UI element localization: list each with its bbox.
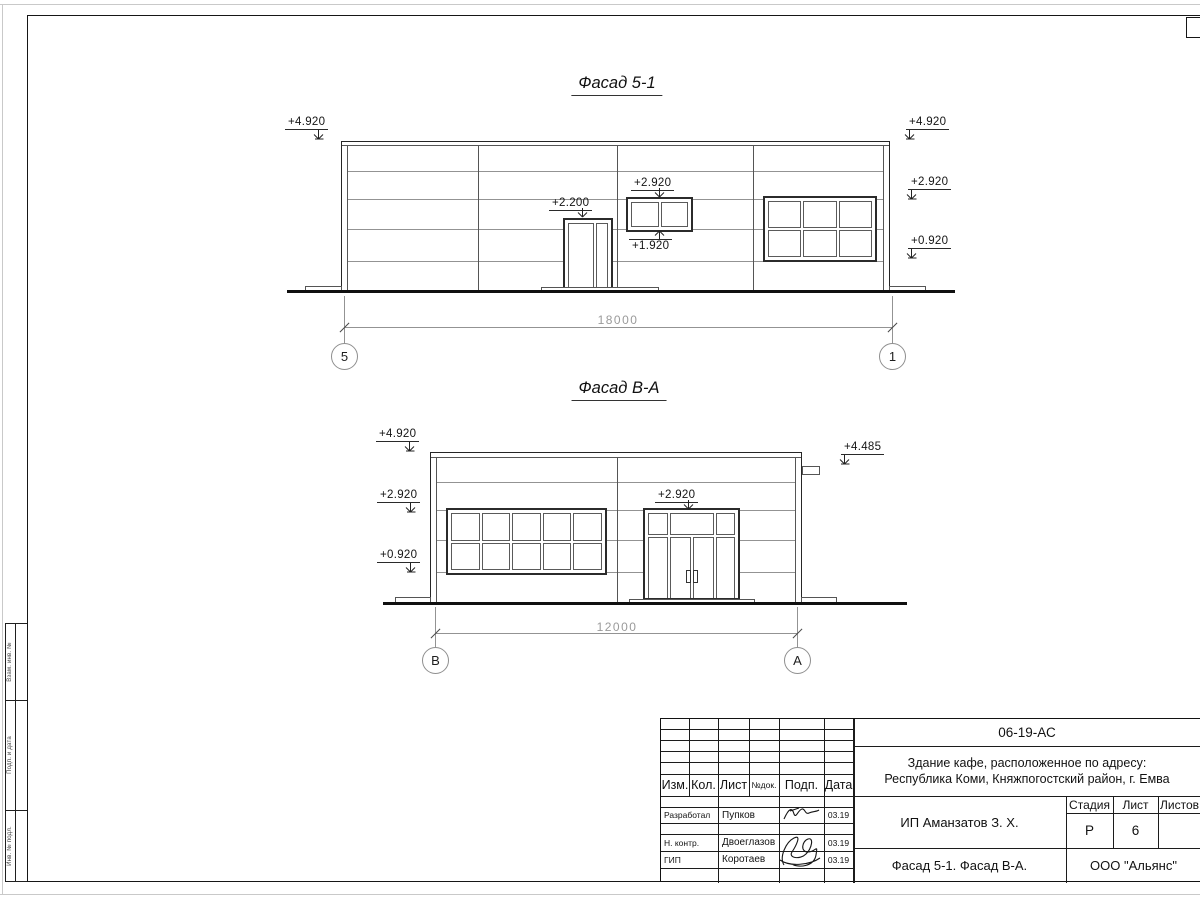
elevation-value: +0.920: [377, 549, 420, 563]
elevation-mark: +4.920: [376, 428, 419, 442]
axis-bubble-a: А: [784, 647, 811, 674]
signature-icon: [775, 829, 823, 871]
facade1-door: [563, 218, 613, 291]
axis-bubble-b: В: [422, 647, 449, 674]
entrance-sidelight-right: [716, 537, 735, 598]
elevation-value: +4.920: [376, 428, 419, 442]
tb-line: [661, 823, 853, 824]
facade2-ground-line: [383, 602, 907, 605]
tb-date: 03.19: [824, 834, 853, 851]
elevation-arrow-icon: [576, 208, 589, 219]
elevation-arrow-icon: [903, 130, 916, 141]
tb-line: [661, 751, 853, 752]
elevation-arrow-icon: [682, 500, 695, 511]
stamp-side-cell-middle: Подп. и дата: [5, 700, 15, 810]
tb-line: [718, 719, 719, 883]
window-pane: [451, 513, 480, 541]
elevation-arrow-icon: [312, 130, 325, 141]
tb-doc-number: 06-19-АС: [853, 719, 1200, 746]
axis-label: В: [431, 653, 440, 668]
window-pane: [482, 513, 511, 541]
tb-line: [661, 762, 853, 763]
tb-role: Разработал: [664, 807, 718, 823]
facade1-ground-line: [287, 290, 955, 293]
facade2-parapet-line: [431, 457, 801, 458]
window-pane: [768, 230, 801, 257]
elevation-mark: +2.920: [377, 489, 420, 503]
tb-name: Двоеглазов: [722, 834, 778, 851]
window-pane: [631, 202, 659, 227]
elevation-arrow-icon: [905, 249, 918, 260]
elevation-arrow-icon: [404, 503, 417, 514]
elevation-value: +4.920: [906, 116, 949, 130]
elevation-mark: +0.920: [377, 549, 420, 563]
facade2-dimension-label: 12000: [597, 620, 638, 634]
facade2-entrance: [643, 508, 740, 600]
elevation-mark: +0.920: [908, 235, 951, 249]
window-pane: [512, 513, 541, 541]
axis-label: 1: [889, 349, 896, 364]
tb-project-name: Здание кафе, расположенное по адресу: Ре…: [853, 746, 1200, 796]
side-column-divider-4: [5, 881, 27, 882]
facade1-door-leaf-main: [568, 223, 594, 289]
elevation-value: +0.920: [908, 235, 951, 249]
entrance-transom-right: [716, 513, 735, 535]
signature-icon: [781, 805, 821, 823]
entrance-sidelight-left: [648, 537, 668, 598]
tb-sheet-title: Фасад 5-1. Фасад В-А.: [853, 848, 1066, 883]
facade2-corner-right: [795, 458, 796, 602]
facade1-corner-right: [883, 146, 884, 290]
tb-line: [661, 796, 853, 797]
facade2-panel-joint: [617, 458, 618, 602]
facade1-window-small: [626, 197, 693, 232]
window-pane: [451, 543, 480, 571]
window-pane: [768, 201, 801, 228]
tb-stage-value: Р: [1066, 813, 1113, 848]
axis-bubble-1: 1: [879, 343, 906, 370]
elevation-mark: +1.920: [629, 239, 672, 253]
window-pane: [839, 201, 872, 228]
tb-name: Коротаев: [722, 851, 778, 868]
facade2-extension-line-right: [797, 607, 798, 648]
elevation-mark: +2.920: [908, 176, 951, 190]
tb-header-list: Лист: [718, 774, 749, 796]
facade2-ribbon-window: [446, 508, 607, 575]
facade1-dimension-label: 18000: [598, 313, 639, 327]
tb-client: ИП Аманзатов З. Х.: [853, 796, 1066, 848]
window-pane: [543, 513, 572, 541]
window-pane: [573, 543, 602, 571]
window-pane: [803, 230, 836, 257]
window-pane: [482, 543, 511, 571]
window-pane: [573, 513, 602, 541]
facade1-siding-line: [348, 171, 883, 172]
paper-edge-left: [2, 4, 3, 895]
elevation-arrow-icon: [905, 190, 918, 201]
tb-sheets-header: Листов: [1158, 796, 1200, 813]
tb-project-line2: Республика Коми, Княжпогостский район, г…: [853, 771, 1200, 787]
elevation-value: +2.920: [908, 176, 951, 190]
facade1-panel-joint: [617, 146, 618, 290]
tb-name: Пупков: [722, 807, 778, 823]
elevation-value: +1.920: [629, 239, 672, 253]
window-pane: [839, 230, 872, 257]
tb-header-kol: Кол.: [689, 774, 718, 796]
facade1-window-large: [763, 196, 877, 262]
door-handle: [686, 570, 691, 583]
entrance-door-leaf: [693, 537, 714, 598]
elevation-mark: +4.920: [906, 116, 949, 130]
tb-stage-header: Стадия: [1066, 796, 1113, 813]
facade2-siding-line: [437, 482, 795, 483]
axis-bubble-5: 5: [331, 343, 358, 370]
paper-edge-top: [0, 4, 1200, 5]
elevation-arrow-icon: [838, 455, 851, 466]
tb-sheet-value: 6: [1113, 813, 1158, 848]
tb-project-line1: Здание кафе, расположенное по адресу:: [853, 755, 1200, 771]
tb-header-data: Дата: [824, 774, 853, 796]
facade2-extension-line-left: [435, 607, 436, 648]
tb-role: Н. контр.: [664, 834, 718, 851]
elevation-arrow-icon: [403, 442, 416, 453]
facade1-door-leaf-narrow: [596, 223, 608, 289]
format-stamp-box: [1186, 17, 1200, 38]
elevation-value: +4.920: [285, 116, 328, 130]
entrance-transom-center: [670, 513, 714, 535]
tb-line: [661, 729, 853, 730]
paper-edge-bottom: [0, 894, 1200, 895]
elevation-mark: +4.485: [841, 441, 884, 455]
facade1-panel-joint: [478, 146, 479, 290]
elevation-arrow-icon: [404, 563, 417, 574]
facade1-extension-line-left: [344, 296, 345, 344]
window-pane: [543, 543, 572, 571]
facade1-extension-line-right: [892, 296, 893, 344]
facade2-corner-left: [436, 458, 437, 602]
elevation-arrow-icon: [653, 188, 666, 199]
tb-header-izm: Изм.: [661, 774, 689, 796]
elevation-mark: +4.920: [285, 116, 328, 130]
stamp-side-cell-bottom: Инв. № подл.: [5, 810, 15, 881]
facade2-wall-outlet: [802, 466, 820, 475]
elevation-value: +2.920: [377, 489, 420, 503]
side-label-bottom: Инв. № подл.: [7, 826, 13, 866]
facade1-parapet-line: [342, 145, 889, 146]
axis-label: А: [793, 653, 802, 668]
side-label-middle: Подп. и дата: [7, 736, 13, 774]
door-handle: [693, 570, 698, 583]
facade1-corner-left: [347, 146, 348, 290]
window-pane: [661, 202, 689, 227]
tb-line: [661, 740, 853, 741]
tb-header-ndok: №док.: [749, 774, 779, 796]
tb-sheet-header: Лист: [1113, 796, 1158, 813]
facade1-dimension-line: [344, 327, 893, 328]
tb-header-podp: Подп.: [779, 774, 824, 796]
entrance-double-door: [670, 537, 714, 598]
side-column-line-inner: [15, 623, 16, 882]
title-block: Изм. Кол. Лист №док. Подп. Дата Разработ…: [660, 718, 1200, 882]
stamp-side-cell-top: Взам. инв. №: [5, 623, 15, 700]
tb-role: ГИП: [664, 851, 718, 868]
facade1-panel-joint: [753, 146, 754, 290]
window-pane: [803, 201, 836, 228]
entrance-transom-left: [648, 513, 668, 535]
tb-company: ООО "Альянс": [1066, 848, 1200, 883]
tb-date: 03.19: [824, 807, 853, 823]
elevation-value: +4.485: [841, 441, 884, 455]
drawing-sheet: Взам. инв. № Подп. и дата Инв. № подл. Ф…: [0, 0, 1200, 900]
axis-label: 5: [341, 349, 348, 364]
tb-date: 03.19: [824, 851, 853, 868]
entrance-door-leaf: [670, 537, 691, 598]
tb-line: [661, 868, 853, 869]
side-label-top: Взам. инв. №: [7, 642, 13, 682]
window-pane: [512, 543, 541, 571]
facade2-title: Фасад В-А: [572, 379, 667, 401]
facade1-title: Фасад 5-1: [571, 74, 662, 96]
